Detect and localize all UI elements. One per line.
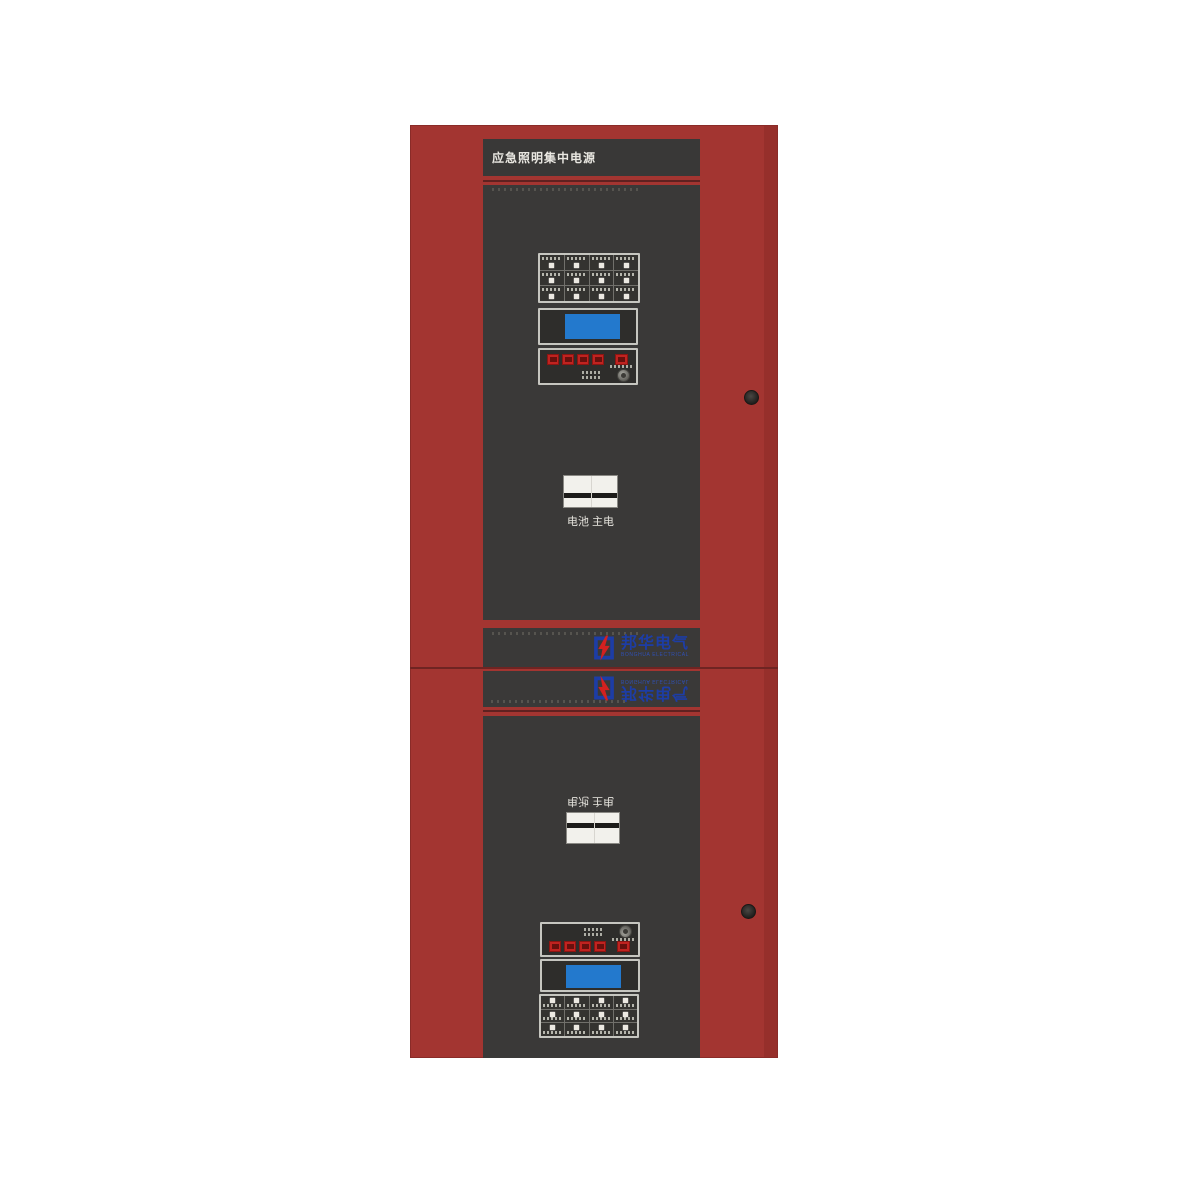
button-glyph	[565, 357, 572, 362]
indicator-label-fineprint	[543, 1004, 562, 1007]
indicator-led	[599, 1012, 604, 1017]
indicator-label-fineprint	[543, 1017, 562, 1020]
indicator-label-fineprint	[567, 1031, 586, 1034]
indicator-led	[624, 278, 629, 283]
logo-texts: 邦华电气 BONGHUA ELECTRICAL	[621, 678, 689, 701]
fine-print-line	[582, 376, 602, 379]
button-glyph	[550, 357, 557, 362]
indicator-led	[574, 294, 579, 299]
key-switch[interactable]	[619, 925, 632, 938]
fine-print-text	[582, 371, 602, 379]
indicator-cell	[614, 271, 638, 286]
rocker-divider	[594, 813, 595, 843]
indicator-led	[599, 998, 604, 1003]
indicator-cell	[614, 255, 638, 270]
indicator-cell	[614, 996, 637, 1009]
indicator-cell	[590, 271, 614, 286]
fine-print-line	[584, 933, 604, 936]
indicator-label-fineprint	[567, 1004, 586, 1007]
cabinet-seam-line	[410, 667, 778, 669]
indicator-led	[623, 1012, 628, 1017]
indicator-cell	[541, 1023, 564, 1036]
indicator-led	[624, 263, 629, 268]
indicator-led	[623, 1025, 628, 1030]
title-bar-shadow-line	[483, 180, 700, 182]
key-switch[interactable]	[617, 369, 630, 382]
button-glyph	[582, 944, 589, 949]
page-background: 应急照明集中电源	[0, 0, 1200, 1200]
indicator-label-fineprint	[592, 288, 612, 291]
control-button[interactable]	[579, 941, 591, 952]
indicator-cell	[590, 1023, 613, 1036]
control-button[interactable]	[592, 354, 604, 365]
indicator-cell	[614, 286, 638, 301]
battery-main-switch-label: 电池 主电	[553, 513, 628, 529]
control-button[interactable]	[549, 941, 561, 952]
logo-cn-text: 邦华电气	[621, 635, 689, 652]
indicator-led	[599, 1025, 604, 1030]
fine-print-line	[582, 371, 602, 374]
logo-mark-icon	[591, 675, 617, 701]
indicator-light-panel	[538, 253, 640, 303]
indicator-cell	[541, 1010, 564, 1023]
indicator-cell	[565, 1010, 588, 1023]
button-glyph	[580, 357, 587, 362]
lcd-display-panel	[540, 959, 640, 992]
indicator-label-fineprint	[616, 273, 636, 276]
indicator-cell	[614, 1010, 637, 1023]
fine-print-line	[584, 928, 604, 931]
door-lock-knob-upper[interactable]	[744, 390, 759, 405]
indicator-led	[599, 294, 604, 299]
door-lock-knob-lower[interactable]	[741, 904, 756, 919]
lower-panel-shadow-line	[483, 710, 700, 712]
indicator-label-fineprint	[616, 1031, 635, 1034]
indicator-cell	[614, 1023, 637, 1036]
control-button[interactable]	[562, 354, 574, 365]
indicator-label-fineprint	[616, 1004, 635, 1007]
indicator-led	[623, 998, 628, 1003]
cabinet-title-bar: 应急照明集中电源	[483, 139, 700, 176]
indicator-cell	[590, 1010, 613, 1023]
lower-door-panel: 电池 主电	[483, 716, 700, 1058]
indicator-cell	[565, 255, 589, 270]
lcd-screen	[565, 314, 620, 339]
battery-main-rocker-switch[interactable]	[566, 812, 620, 844]
key-switch-label-fineprint	[612, 938, 635, 941]
indicator-led	[574, 263, 579, 268]
indicator-label-fineprint	[616, 288, 636, 291]
indicator-label-fineprint	[592, 1031, 611, 1034]
indicator-light-panel	[539, 994, 639, 1038]
control-button-panel	[540, 922, 640, 957]
indicator-led	[574, 1012, 579, 1017]
indicator-label-fineprint	[567, 288, 587, 291]
key-slot	[621, 373, 626, 378]
rocker-divider	[591, 476, 592, 507]
lower-logo-band: 邦华电气 BONGHUA ELECTRICAL	[483, 671, 700, 707]
indicator-cell	[565, 286, 589, 301]
indicator-led	[624, 294, 629, 299]
indicator-led	[599, 278, 604, 283]
indicator-cell	[590, 286, 614, 301]
indicator-label-fineprint	[542, 273, 562, 276]
logo-mark-icon	[591, 635, 617, 661]
indicator-label-fineprint	[567, 273, 587, 276]
indicator-led	[550, 1012, 555, 1017]
control-button-panel	[538, 348, 638, 385]
logo-en-text: BONGHUA ELECTRICAL	[621, 652, 689, 658]
logo-cn-text: 邦华电气	[621, 684, 689, 701]
upper-door-panel: 电池 主电	[483, 185, 700, 620]
indicator-cell	[540, 286, 564, 301]
button-glyph	[620, 944, 627, 949]
fine-print-text	[584, 928, 604, 936]
indicator-label-fineprint	[567, 1017, 586, 1020]
key-slot	[623, 929, 628, 934]
button-glyph	[618, 357, 625, 362]
indicator-grid	[540, 255, 638, 301]
function-button[interactable]	[615, 354, 628, 365]
indicator-label-fineprint	[543, 1031, 562, 1034]
brand-logo: 邦华电气 BONGHUA ELECTRICAL	[591, 635, 689, 661]
indicator-led	[550, 998, 555, 1003]
function-button[interactable]	[617, 941, 630, 952]
panel-screw-texture	[492, 188, 642, 191]
cabinet-right-edge-shade	[764, 126, 777, 1057]
indicator-led	[549, 263, 554, 268]
brand-logo-mirrored: 邦华电气 BONGHUA ELECTRICAL	[591, 675, 689, 701]
button-glyph	[552, 944, 559, 949]
logo-texts: 邦华电气 BONGHUA ELECTRICAL	[621, 635, 689, 658]
indicator-label-fineprint	[616, 257, 636, 260]
control-button[interactable]	[547, 354, 559, 365]
indicator-cell	[565, 271, 589, 286]
indicator-label-fineprint	[592, 1004, 611, 1007]
control-button[interactable]	[594, 941, 606, 952]
button-glyph	[595, 357, 602, 362]
button-glyph	[567, 944, 574, 949]
indicator-led	[574, 278, 579, 283]
button-glyph	[597, 944, 604, 949]
battery-main-switch-label-mirrored: 电池 主电	[553, 794, 628, 810]
battery-main-rocker-switch[interactable]	[563, 475, 618, 508]
rocker-band	[567, 823, 619, 828]
indicator-led	[574, 1025, 579, 1030]
control-button-row	[549, 941, 606, 952]
indicator-cell	[540, 255, 564, 270]
indicator-cell	[590, 996, 613, 1009]
indicator-label-fineprint	[542, 257, 562, 260]
indicator-led	[549, 294, 554, 299]
indicator-label-fineprint	[592, 273, 612, 276]
upper-logo-band: 邦华电气 BONGHUA ELECTRICAL	[483, 628, 700, 667]
cabinet-title: 应急照明集中电源	[483, 149, 596, 166]
indicator-led	[550, 1025, 555, 1030]
indicator-cell	[565, 1023, 588, 1036]
indicator-cell	[565, 996, 588, 1009]
indicator-label-fineprint	[592, 1017, 611, 1020]
indicator-label-fineprint	[592, 257, 612, 260]
indicator-led	[599, 263, 604, 268]
control-button[interactable]	[577, 354, 589, 365]
control-button-row	[547, 354, 604, 365]
indicator-grid	[541, 996, 637, 1036]
indicator-led	[549, 278, 554, 283]
indicator-label-fineprint	[567, 257, 587, 260]
indicator-label-fineprint	[542, 288, 562, 291]
control-button[interactable]	[564, 941, 576, 952]
indicator-cell	[540, 271, 564, 286]
logo-en-text: BONGHUA ELECTRICAL	[621, 678, 689, 684]
indicator-cell	[541, 996, 564, 1009]
indicator-led	[574, 998, 579, 1003]
lcd-screen	[566, 965, 621, 988]
key-switch-label-fineprint	[610, 365, 633, 368]
lcd-display-panel	[538, 308, 638, 345]
indicator-label-fineprint	[616, 1017, 635, 1020]
indicator-cell	[590, 255, 614, 270]
